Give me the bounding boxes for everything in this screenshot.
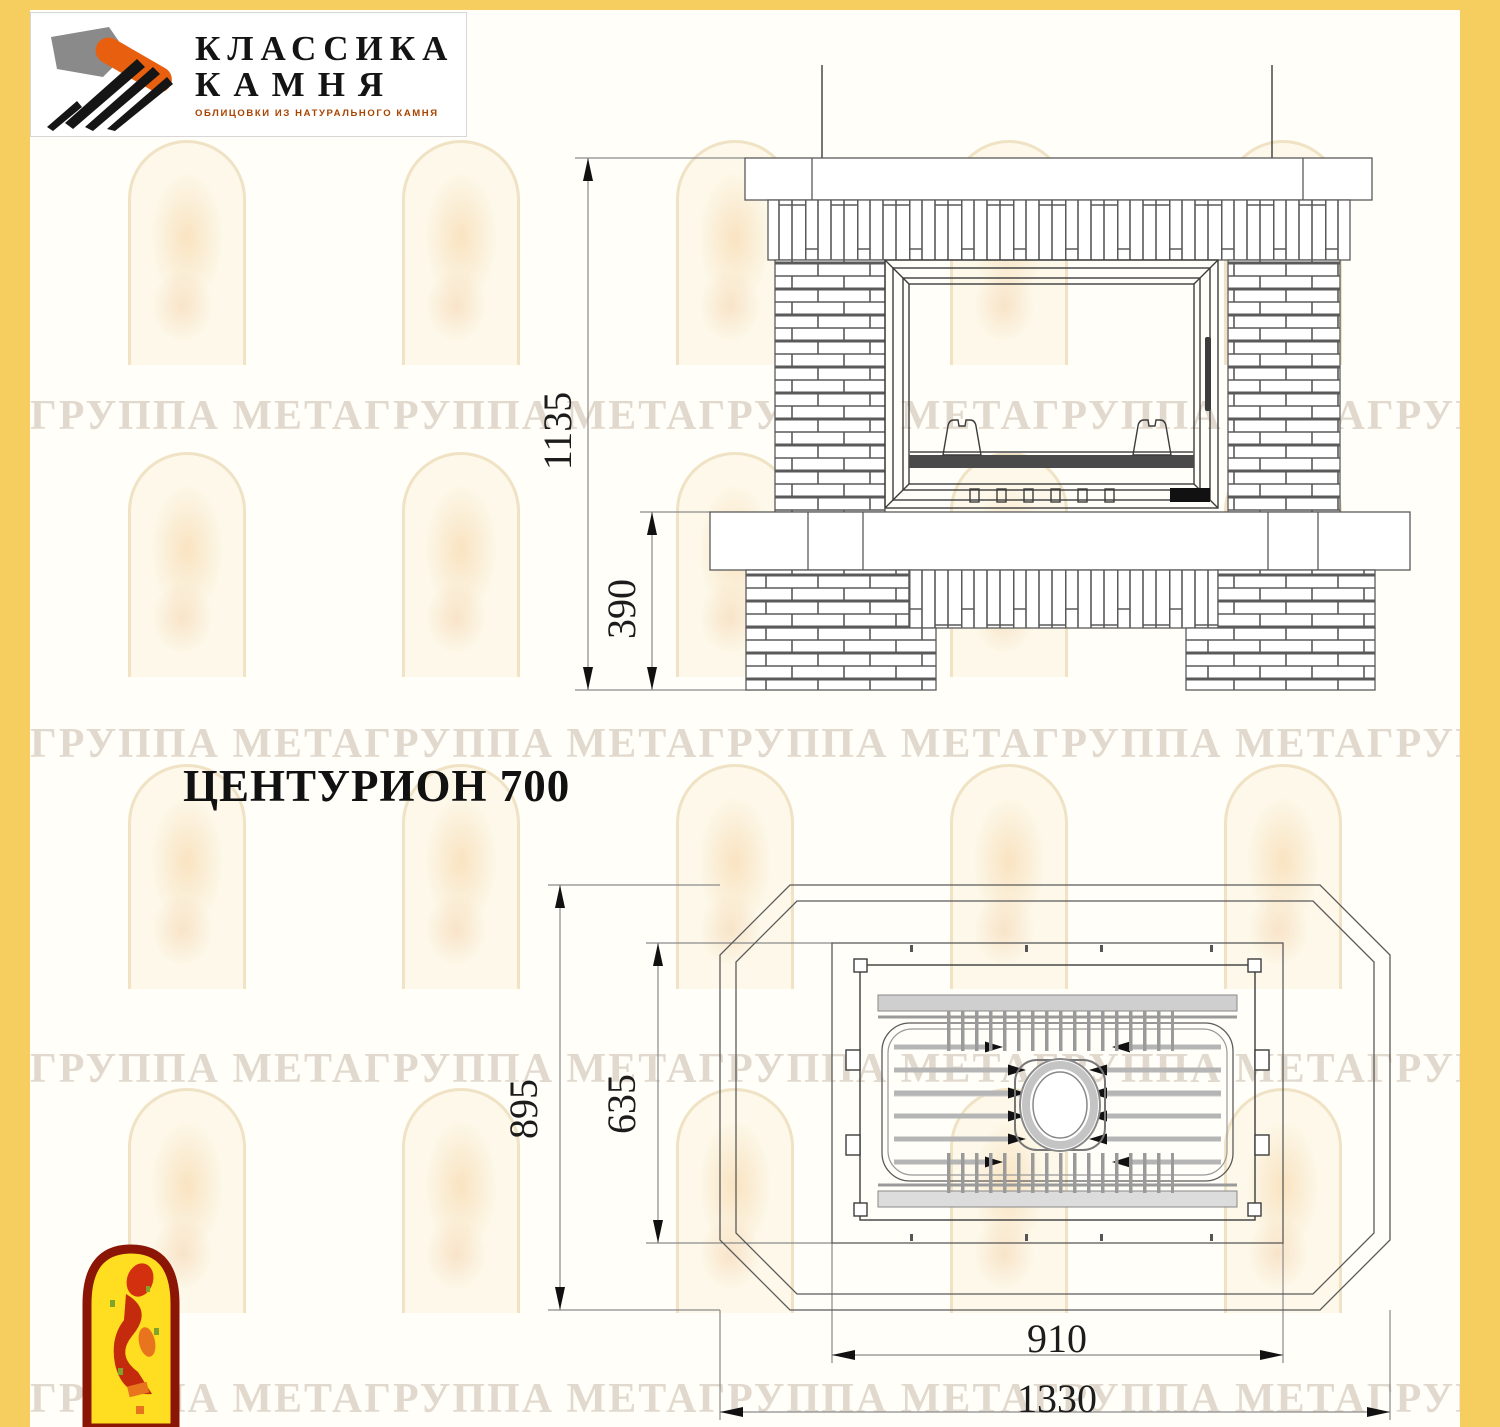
- grate-ribs-left: [894, 1042, 1026, 1168]
- watermark-arch: [128, 452, 246, 677]
- mantel-shelf: [745, 158, 1372, 200]
- brand-tagline: ОБЛИЦОВКИ ИЗ НАТУРАЛЬНОГО КАМНЯ: [195, 108, 460, 119]
- model-title: ЦЕНТУРИОН 700: [183, 760, 570, 812]
- hearth-shelf: [710, 512, 1410, 570]
- brand-title-line2: КАМНЯ: [195, 67, 460, 103]
- firebox-glass: [909, 284, 1194, 484]
- grate-ribs-right: [1089, 1042, 1221, 1168]
- andiron-right: [1133, 420, 1171, 455]
- watermark-arch: [402, 140, 520, 365]
- arch-flame-logo: [80, 1238, 182, 1427]
- stone-logo-icon: [37, 19, 195, 131]
- front-elevation-drawing: [545, 55, 1425, 700]
- insert-plan: [846, 959, 1269, 1220]
- brand-title-line1: КЛАССИКА: [195, 31, 460, 67]
- comb-teeth-bottom: [942, 1153, 1174, 1193]
- pedestal-left: [746, 628, 936, 690]
- left-brick-column: [775, 260, 885, 512]
- watermark-arch: [402, 452, 520, 677]
- comb-teeth-top: [942, 1011, 1174, 1051]
- right-brick-column: [1228, 260, 1340, 512]
- andiron-left: [943, 420, 981, 455]
- back-plate: [878, 995, 1237, 1011]
- dim-635-lines: [646, 943, 832, 1243]
- drawing-sheet: ГРУППА МЕТАГРУППА МЕТАГРУППА МЕТАГРУППА …: [30, 10, 1460, 1427]
- door-handle: [1205, 337, 1211, 411]
- grate-bar: [909, 455, 1194, 468]
- dim-390-lines: [640, 512, 710, 690]
- page: ГРУППА МЕТАГРУППА МЕТАГРУППА МЕТАГРУППА …: [0, 0, 1500, 1427]
- brand-logo: КЛАССИКА КАМНЯ ОБЛИЦОВКИ ИЗ НАТУРАЛЬНОГО…: [30, 12, 467, 137]
- base-band-soldier: [909, 570, 1218, 628]
- nameplate-badge: [1170, 488, 1210, 502]
- dim-label-895: 895: [503, 1039, 545, 1179]
- dim-label-910: 910: [987, 1318, 1127, 1360]
- dim-label-635: 635: [601, 1034, 643, 1174]
- soldier-course-top: [768, 200, 1350, 260]
- front-plate: [878, 1191, 1237, 1207]
- dim-label-1135: 1135: [537, 361, 579, 501]
- base-band-right: [1218, 570, 1375, 628]
- dim-label-1330: 1330: [987, 1378, 1127, 1420]
- pedestal-right: [1186, 628, 1375, 690]
- dim-label-390: 390: [601, 539, 643, 679]
- brand-words: КЛАССИКА КАМНЯ ОБЛИЦОВКИ ИЗ НАТУРАЛЬНОГО…: [195, 31, 466, 119]
- watermark-arch: [128, 140, 246, 365]
- chimney-lines: [822, 65, 1272, 158]
- base-band-left: [746, 570, 909, 628]
- firebox-insert: [885, 260, 1218, 508]
- center-flue-ring: [1015, 1059, 1105, 1151]
